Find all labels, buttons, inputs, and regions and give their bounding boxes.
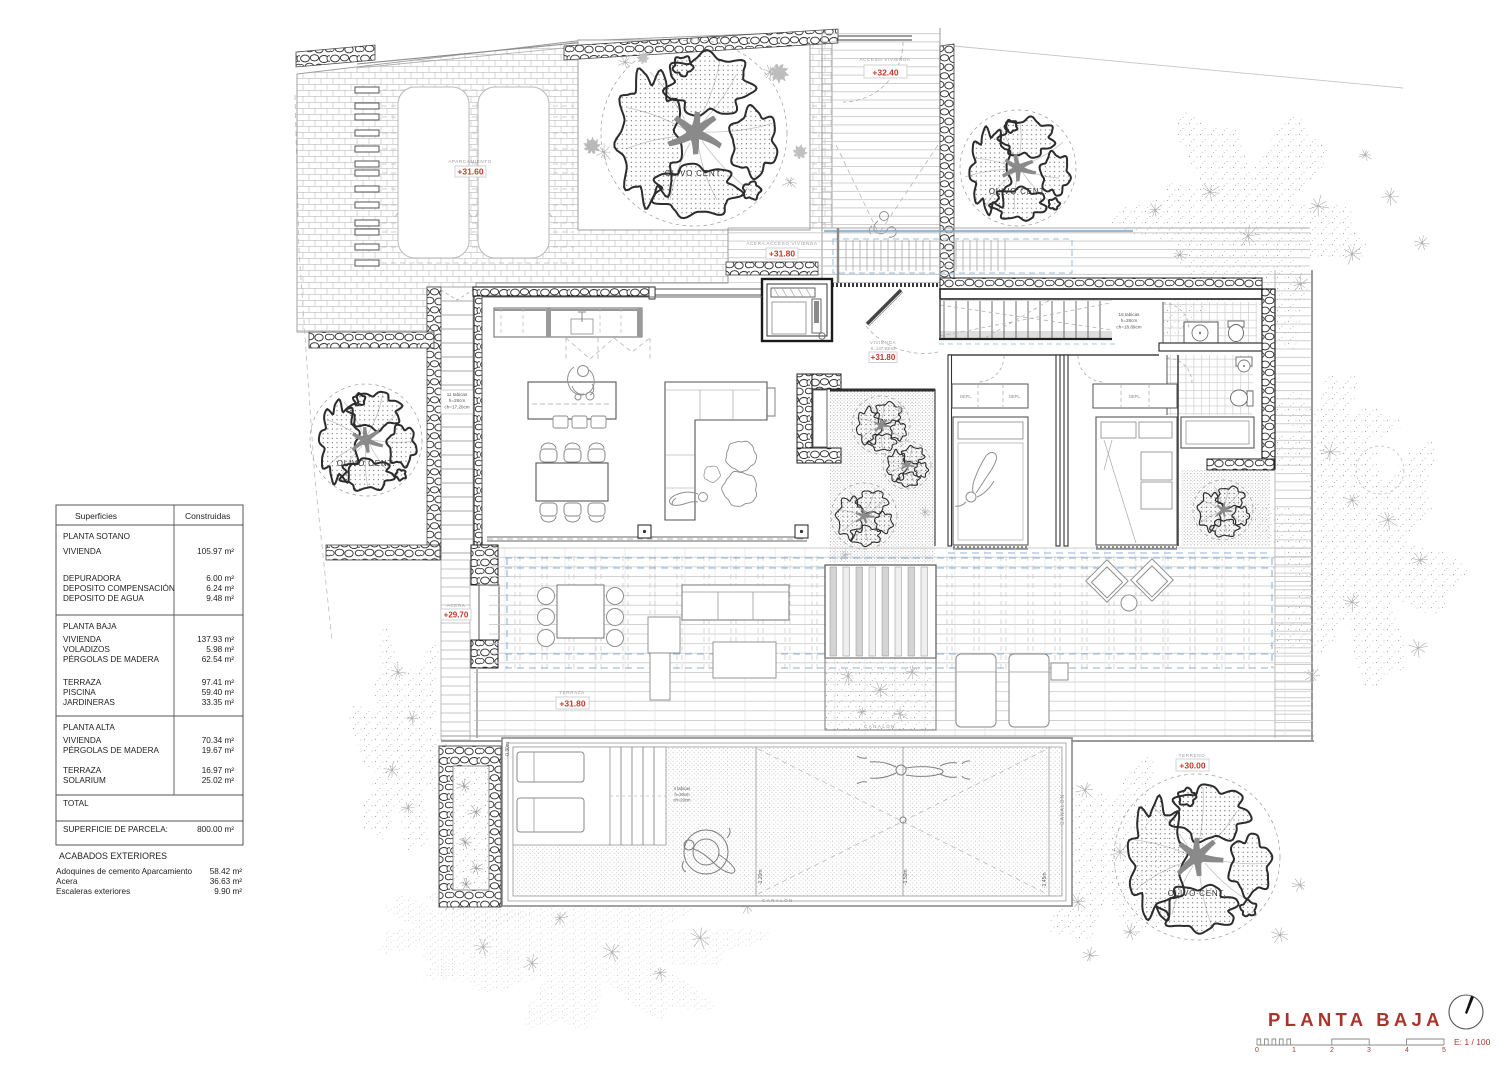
- svg-text:70.34 m²: 70.34 m²: [202, 736, 235, 745]
- svg-text:S. 137.93m2: S. 137.93m2: [871, 346, 896, 351]
- svg-text:DEPOSITO DE AGUA: DEPOSITO DE AGUA: [63, 594, 144, 603]
- svg-text:-1.50m: -1.50m: [903, 869, 909, 885]
- svg-text:62.54 m²: 62.54 m²: [202, 655, 235, 664]
- svg-text:0: 0: [1255, 1047, 1259, 1054]
- svg-text:Escaleras exteriores: Escaleras exteriores: [56, 887, 130, 896]
- svg-text:4: 4: [1405, 1047, 1409, 1054]
- svg-text:OLIVO CENT.: OLIVO CENT.: [665, 169, 724, 178]
- svg-text:+31.80: +31.80: [559, 699, 586, 709]
- svg-text:VIVIENDA: VIVIENDA: [63, 547, 102, 556]
- svg-text:VIVIENDA: VIVIENDA: [63, 635, 102, 644]
- svg-text:PLANTA ALTA: PLANTA ALTA: [63, 723, 115, 732]
- svg-text:APARCAMIENTO: APARCAMIENTO: [448, 159, 492, 164]
- svg-text:SUPERFICIE DE PARCELA:: SUPERFICIE DE PARCELA:: [63, 825, 168, 834]
- svg-text:h=30cm: h=30cm: [674, 792, 690, 797]
- svg-text:Superficies: Superficies: [75, 511, 117, 521]
- svg-text:OLIVO CENT.: OLIVO CENT.: [989, 187, 1048, 196]
- svg-text:-0.30m: -0.30m: [505, 742, 511, 758]
- svg-text:DEPOSITO COMPENSACIÓN: DEPOSITO COMPENSACIÓN: [63, 583, 175, 593]
- svg-text:CANALÓN: CANALÓN: [864, 724, 896, 729]
- svg-text:105.97 m²: 105.97 m²: [197, 547, 234, 556]
- svg-text:11 tabicas: 11 tabicas: [447, 392, 468, 397]
- svg-text:PLANTA BAJA: PLANTA BAJA: [1268, 1009, 1444, 1030]
- svg-text:Acera: Acera: [56, 877, 78, 886]
- svg-text:4 tabicas: 4 tabicas: [674, 786, 691, 791]
- svg-text:h=28cm: h=28cm: [449, 398, 466, 403]
- svg-text:+30.00: +30.00: [1179, 761, 1206, 771]
- svg-text:DEPURADORA: DEPURADORA: [63, 574, 121, 583]
- svg-text:OLIVO CENT.: OLIVO CENT.: [1168, 889, 1227, 898]
- svg-text:DEPL.: DEPL.: [1129, 394, 1141, 399]
- svg-text:5: 5: [1442, 1047, 1446, 1054]
- svg-text:SOLARIUM: SOLARIUM: [63, 776, 106, 785]
- svg-text:PLANTA SOTANO: PLANTA SOTANO: [63, 532, 130, 541]
- svg-text:OLIVO CENT.: OLIVO CENT.: [337, 459, 396, 468]
- svg-text:ch=17.20cm: ch=17.20cm: [444, 404, 469, 409]
- svg-text:Construidas: Construidas: [185, 511, 230, 521]
- svg-text:2: 2: [1330, 1047, 1334, 1054]
- svg-text:PLANTA BAJA: PLANTA BAJA: [63, 622, 117, 631]
- svg-text:3: 3: [1367, 1047, 1371, 1054]
- svg-text:+31.60: +31.60: [457, 167, 484, 177]
- svg-text:TERRAZA: TERRAZA: [63, 678, 102, 687]
- svg-text:137.93 m²: 137.93 m²: [197, 635, 234, 644]
- svg-text:TOTAL: TOTAL: [63, 799, 89, 808]
- svg-text:25.02 m²: 25.02 m²: [202, 776, 235, 785]
- svg-text:6.00 m²: 6.00 m²: [206, 574, 234, 583]
- svg-text:VIVIENDA: VIVIENDA: [870, 340, 897, 345]
- svg-text:PÉRGOLAS DE MADERA: PÉRGOLAS DE MADERA: [63, 745, 160, 755]
- svg-text:DEPL.: DEPL.: [1009, 394, 1021, 399]
- svg-text:16.97 m²: 16.97 m²: [202, 766, 235, 775]
- svg-text:CANALÓN: CANALÓN: [762, 898, 794, 903]
- svg-text:ACABADOS EXTERIORES: ACABADOS EXTERIORES: [59, 851, 167, 861]
- svg-text:16 tabicas: 16 tabicas: [1119, 312, 1141, 317]
- svg-text:-1.20m: -1.20m: [758, 869, 764, 885]
- svg-text:TERRENO: TERRENO: [1179, 753, 1206, 758]
- svg-text:h=28cm: h=28cm: [1121, 318, 1138, 323]
- svg-text:ACCESO VIVIENDA: ACCESO VIVIENDA: [859, 57, 910, 62]
- svg-text:JARDINERAS: JARDINERAS: [63, 698, 115, 707]
- svg-text:58.42 m²: 58.42 m²: [210, 867, 243, 876]
- svg-text:1: 1: [1292, 1047, 1296, 1054]
- svg-text:ch=20cm: ch=20cm: [673, 798, 691, 803]
- svg-text:+29.70: +29.70: [444, 611, 469, 620]
- svg-text:VIVIENDA: VIVIENDA: [63, 736, 102, 745]
- svg-text:800.00 m²: 800.00 m²: [197, 825, 234, 834]
- svg-text:-1.45m: -1.45m: [1042, 872, 1048, 888]
- svg-text:9.90 m²: 9.90 m²: [214, 887, 242, 896]
- svg-text:Adoquines de cemento Aparcamie: Adoquines de cemento Aparcamiento: [56, 867, 193, 876]
- svg-text:+32.40: +32.40: [872, 68, 899, 78]
- svg-text:VOLADIZOS: VOLADIZOS: [63, 645, 110, 654]
- svg-text:ACERA: ACERA: [447, 603, 466, 608]
- svg-text:59.40 m²: 59.40 m²: [202, 688, 235, 697]
- svg-text:36.63 m²: 36.63 m²: [210, 877, 243, 886]
- svg-text:+31.80: +31.80: [769, 249, 796, 259]
- svg-text:6.24 m²: 6.24 m²: [206, 584, 234, 593]
- svg-text:DEPL.: DEPL.: [960, 394, 972, 399]
- svg-text:PÉRGOLAS DE MADERA: PÉRGOLAS DE MADERA: [63, 654, 160, 664]
- svg-text:ACERA ACCESO VIVIENDA: ACERA ACCESO VIVIENDA: [746, 241, 818, 246]
- svg-text:97.41 m²: 97.41 m²: [202, 678, 235, 687]
- svg-text:33.35 m²: 33.35 m²: [202, 698, 235, 707]
- svg-text:5.98 m²: 5.98 m²: [206, 645, 234, 654]
- svg-text:CANALÓN: CANALÓN: [1059, 794, 1066, 825]
- svg-text:TERRAZA: TERRAZA: [63, 766, 102, 775]
- svg-text:19.67 m²: 19.67 m²: [202, 746, 235, 755]
- svg-text:E: 1 / 100: E: 1 / 100: [1454, 1037, 1491, 1047]
- svg-text:9.48 m²: 9.48 m²: [206, 594, 234, 603]
- svg-text:+31.80: +31.80: [871, 353, 896, 362]
- svg-text:TERRAZA: TERRAZA: [559, 690, 585, 695]
- svg-text:ch=18.89cm: ch=18.89cm: [1116, 324, 1141, 329]
- svg-text:PISCINA: PISCINA: [63, 688, 96, 697]
